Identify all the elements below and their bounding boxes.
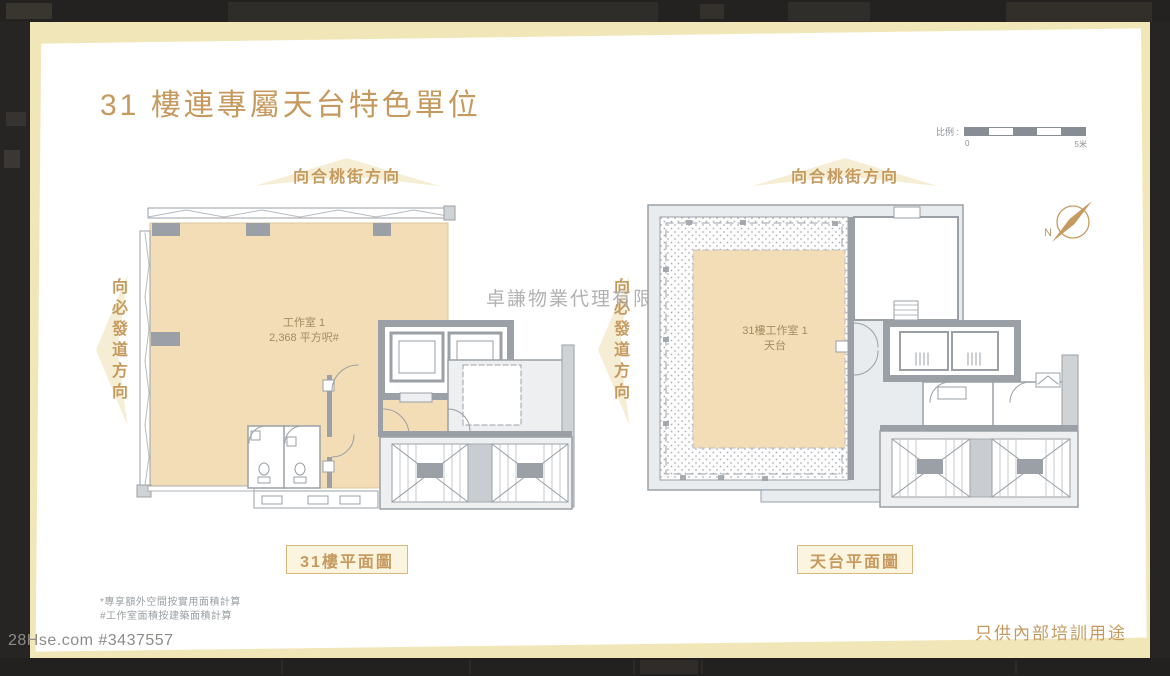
page-title: 31 樓連專屬天台特色單位 <box>100 80 481 124</box>
top-filmstrip <box>0 0 1170 22</box>
listing-id: 28Hse.com #3437557 <box>8 632 174 650</box>
room-area: 2,368 平方呎# <box>238 331 370 346</box>
internal-training-note: 只供內部培訓用途 <box>975 619 1127 644</box>
compass-north-label: N <box>1044 227 1052 239</box>
footnote-2: #工作室面積按建築面積計算 <box>100 607 232 622</box>
sidebar-ghost <box>4 150 20 168</box>
room-name: 工作室 1 <box>238 316 370 331</box>
caption-31f-plan: 31樓平面圖 <box>286 545 408 574</box>
thumbnail-ghost[interactable] <box>6 3 52 19</box>
scale-max: 5米 <box>1075 139 1087 150</box>
thumbnail-divider <box>469 660 471 674</box>
thumbnail-ghost[interactable] <box>700 4 724 19</box>
scale-label: 比例 : <box>936 125 959 138</box>
thumbnail-divider <box>633 660 635 674</box>
direction-left-plan-side: 向必發道方向 <box>96 274 132 426</box>
caption-roof-plan: 天台平面圖 <box>797 545 913 574</box>
viewer-stage: 28Hse.com #3437557 31 樓連專屬天台特色單位 比例 : 0 … <box>0 0 1170 676</box>
thumbnail-ghost[interactable] <box>1006 2 1152 22</box>
compass-icon <box>1040 193 1100 253</box>
floorplan-roof <box>638 195 1090 530</box>
scale-bar-graphic <box>964 127 1086 136</box>
thumbnail-divider <box>281 660 283 674</box>
scale-min: 0 <box>965 139 969 150</box>
thumbnail-ghost[interactable] <box>228 2 658 22</box>
thumbnail-divider <box>1015 660 1017 674</box>
direction-label: 向合桃街方向 <box>254 163 440 187</box>
footnote-1: *專享額外空間按實用面積計算 <box>100 593 241 608</box>
floorplan-31f <box>130 195 575 525</box>
room-label-31f: 工作室 1 2,368 平方呎# <box>238 316 370 346</box>
direction-left-plan-top: 向合桃街方向 <box>254 158 440 194</box>
direction-label: 向必發道方向 <box>105 278 129 404</box>
sidebar-ghost <box>6 112 26 126</box>
direction-label: 向合桃街方向 <box>752 163 938 187</box>
room-label-roof: 31樓工作室 1 天台 <box>708 324 842 354</box>
scale-bar: 比例 : 0 5米 <box>936 125 1087 150</box>
bottom-filmstrip <box>0 658 1170 676</box>
room-name: 31樓工作室 1 <box>708 324 842 339</box>
thumbnail-divider <box>701 660 703 674</box>
room-area: 天台 <box>708 339 842 354</box>
thumbnail-ghost[interactable] <box>788 2 870 21</box>
direction-right-plan-top: 向合桃街方向 <box>752 158 938 194</box>
thumbnail-ghost[interactable] <box>640 660 698 674</box>
